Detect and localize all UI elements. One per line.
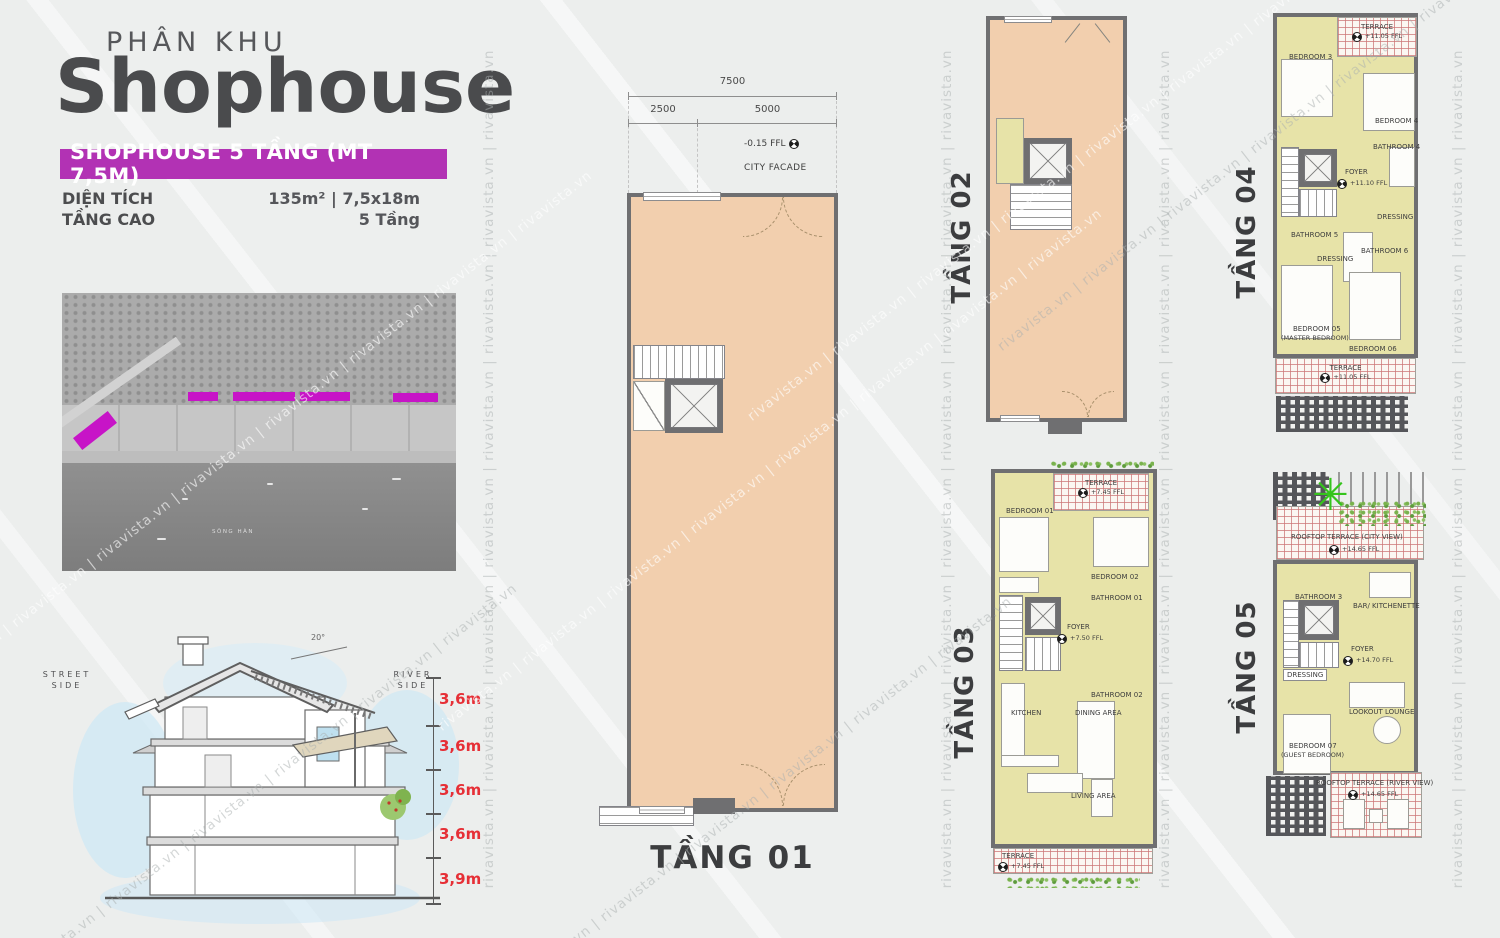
door-swing: [743, 197, 783, 237]
rooftop-city-label: ROOFTOP TERRACE (CITY VIEW): [1291, 533, 1403, 541]
boat: [362, 508, 368, 510]
door-swing: [1062, 391, 1088, 417]
floor-label-tang-01: TẦNG 01: [627, 840, 838, 876]
staircase: [1281, 147, 1299, 217]
floor-height-value: 3,6m: [439, 781, 481, 799]
north-arrow-icon: [1327, 543, 1341, 557]
highlighted-shophouse-row: [188, 392, 218, 401]
building-cross-section: STREET SIDE RIVER SIDE 20° 3,6m 3,6m 3,6…: [55, 615, 485, 930]
elevator-cab: [1030, 602, 1056, 630]
dim-tick: [426, 769, 441, 771]
spec-table: DIỆN TÍCH 135m² | 7,5x18m TẦNG CAO 5 Tần…: [62, 188, 420, 230]
wall-notch: [693, 798, 735, 814]
room-label-bedroom06: BEDROOM 06: [1349, 345, 1397, 353]
ffl-note: +14.70 FFL: [1343, 656, 1393, 666]
dim-line: [628, 96, 837, 97]
spec-row-area: DIỆN TÍCH 135m² | 7,5x18m: [62, 188, 420, 209]
bar-counter: [1369, 572, 1411, 598]
elevator: [665, 379, 723, 433]
staircase: [1283, 600, 1299, 668]
spec-row-floors: TẦNG CAO 5 Tầng: [62, 209, 420, 230]
staircase: [1299, 642, 1339, 668]
floor-label-tang-03: TẦNG 03: [948, 617, 982, 767]
ffl-value: +7.45 FFL: [1011, 863, 1044, 871]
north-arrow-icon: [1318, 371, 1332, 385]
furniture-block: [999, 577, 1039, 593]
floor-label-tang-02: TẦNG 02: [945, 162, 979, 312]
door-swing: [1088, 391, 1114, 417]
lounge-chair: [1387, 799, 1409, 829]
floor-plan-tang-05: BATHROOM 3 BAR/ KITCHENETTE FOYER +14.70…: [1273, 560, 1418, 775]
sofa: [1027, 773, 1083, 793]
floor-label-tang-05: TẦNG 05: [1230, 592, 1264, 742]
staircase: [1025, 637, 1061, 671]
north-arrow-icon: [1335, 177, 1349, 191]
elevator: [1299, 149, 1337, 187]
north-arrow-icon: [1055, 632, 1069, 646]
ffl-value: +11.10 FFL: [1350, 180, 1387, 188]
terrace: TERRACE +11.05 FFL: [1337, 17, 1417, 57]
highlighted-shophouse-row: [233, 392, 295, 401]
boat: [157, 538, 166, 540]
bed: [1281, 59, 1333, 117]
window: [1000, 415, 1040, 422]
window: [639, 806, 685, 814]
ffl-note: +11.05 FFL: [1320, 373, 1370, 383]
rooftop-river-label: ROOFTOP TERRACE (RIVER VIEW): [1316, 779, 1433, 787]
stair-core: [1283, 600, 1339, 670]
stair-landing: [633, 381, 665, 431]
room-label-bathroom01: BATHROOM 01: [1091, 594, 1143, 602]
dim-line: [628, 123, 837, 124]
room-label-living: LIVING AREA: [1071, 792, 1116, 800]
ffl-value: +14.65 FFL: [1342, 546, 1379, 554]
river-side-label: RIVER SIDE: [381, 669, 445, 691]
river-name-label: SÔNG HÀN: [212, 529, 254, 535]
dim-left: 2500: [628, 104, 698, 115]
elevator: [1299, 600, 1339, 640]
highlighted-shophouse-row: [393, 393, 438, 402]
wall-stub: [1048, 418, 1082, 434]
room-label-foyer: FOYER: [1345, 168, 1368, 176]
dim-tick: [426, 813, 441, 815]
north-arrow-icon: [1350, 30, 1364, 44]
ffl-note: +14.65 FFL: [1329, 545, 1379, 555]
boat: [182, 498, 188, 500]
height-dimension-line: [433, 677, 434, 905]
room-label-bathroom4: BATHROOM 4: [1373, 143, 1420, 151]
room-label-bedroom3: BEDROOM 3: [1289, 53, 1332, 61]
room-label-bedroom4: BEDROOM 4: [1375, 117, 1418, 125]
stair-core: [996, 118, 1074, 230]
watermark: rivavista.vn | rivavista.vn | rivavista.…: [1450, 50, 1466, 889]
dim-tick: [426, 677, 441, 679]
staircase: [1299, 189, 1337, 217]
floor-height-value: 3,6m: [439, 737, 481, 755]
north-arrow-icon: [996, 860, 1010, 874]
room-label-dressing: DRESSING: [1377, 213, 1413, 221]
door-leaf: [1095, 23, 1111, 43]
ffl-note: +7.50 FFL: [1057, 634, 1103, 644]
page-title: Shophouse: [55, 44, 515, 130]
elevator-cab: [1304, 605, 1334, 635]
spec-floors-value: 5 Tầng: [359, 209, 420, 230]
floor-plan-tang-02: [986, 16, 1127, 422]
room-label-kitchen: KITCHEN: [1011, 709, 1041, 717]
bed: [1349, 272, 1401, 340]
window: [1004, 16, 1052, 23]
dim-tick: [836, 119, 837, 127]
floor-plan-tang-03: TERRACE +7.45 FFL BEDROOM 01 BEDROOM 02 …: [991, 469, 1157, 848]
room-label-bathroom02: BATHROOM 02: [1091, 691, 1143, 699]
street-side-label: STREET SIDE: [35, 669, 99, 691]
kitchen-counter: [1001, 683, 1025, 761]
watermark: rivavista.vn | rivavista.vn | rivavista.…: [1157, 50, 1173, 889]
room-label-bathroom3: BATHROOM 3: [1295, 593, 1342, 601]
dim-tick: [426, 903, 441, 905]
ffl-value: +11.05 FFL: [1365, 33, 1402, 41]
room-label-bathroom5: BATHROOM 5: [1291, 231, 1338, 239]
floor-label-tang-04: TẦNG 04: [1230, 157, 1264, 307]
room-label-bedroom07-sub: (GUEST BEDROOM): [1281, 752, 1344, 760]
ffl-value: +11.05 FFL: [1333, 374, 1370, 382]
room-label-bedroom01: BEDROOM 01: [1006, 507, 1054, 515]
ffl-value: +14.70 FFL: [1356, 657, 1393, 665]
stair-core: [999, 595, 1061, 673]
sofa: [1349, 682, 1405, 708]
bathroom-fixture: [1389, 147, 1415, 187]
door-swing: [783, 764, 825, 806]
city-facade-label: CITY FACADE: [744, 163, 807, 174]
elevator-cab: [1029, 143, 1067, 179]
staircase: [999, 595, 1023, 671]
elevator-cab: [670, 384, 718, 428]
ffl-note: +14.65 FFL: [1348, 790, 1398, 800]
room-label-dining: DINING AREA: [1075, 709, 1122, 717]
room-label-dressing: DRESSING: [1283, 669, 1327, 681]
dim-tick: [628, 119, 629, 127]
room-label-bar: BAR/ KITCHENETTE: [1353, 602, 1420, 610]
room-label-dressing: DRESSING: [1317, 255, 1353, 263]
floor-height-value: 3,9m: [439, 870, 481, 888]
ffl-note: +11.10 FFL: [1337, 179, 1387, 189]
map-trees-texture: [62, 293, 456, 405]
dim-tick: [697, 119, 698, 127]
terrace: TERRACE +7.45 FFL: [1053, 473, 1149, 511]
staircase: [633, 345, 725, 379]
dim-tick: [628, 92, 629, 100]
boat: [267, 483, 273, 485]
dim-tick: [426, 857, 441, 859]
north-arrow-icon: [1346, 788, 1360, 802]
planting-strip: [1050, 460, 1154, 470]
floor-height-value: 3,6m: [439, 825, 481, 843]
stair-landing: [996, 118, 1024, 184]
ffl-value: +7.50 FFL: [1070, 635, 1103, 643]
planting-strip: [1006, 876, 1140, 888]
map-street-band: [62, 405, 456, 455]
elevator: [1025, 597, 1061, 635]
roof-angle-label: 20°: [311, 633, 325, 642]
bed: [1093, 517, 1149, 567]
spec-area-label: DIỆN TÍCH: [62, 188, 153, 209]
room-label-foyer: FOYER: [1067, 623, 1090, 631]
dim-tick: [836, 92, 837, 100]
dim-total: 7500: [627, 76, 838, 87]
lounge-chair: [1343, 799, 1365, 829]
north-arrow-icon: [786, 137, 800, 151]
elevator-cab: [1304, 154, 1332, 182]
room-label-bedroom05-sub: (MASTER BEDROOM): [1281, 335, 1349, 343]
room-label-bedroom02: BEDROOM 02: [1091, 573, 1139, 581]
bed: [999, 517, 1049, 572]
room-label-foyer: FOYER: [1351, 645, 1374, 653]
brochure-page: rivavista.vn | rivavista.vn | rivavista.…: [0, 0, 1500, 938]
terrace: TERRACE +11.05 FFL: [1275, 358, 1416, 394]
room-label-lookout: LOOKOUT LOUNGE: [1349, 708, 1414, 716]
terrace-label: TERRACE: [1085, 479, 1117, 487]
north-arrow-icon: [1341, 654, 1355, 668]
floor-plan-tang-04: TERRACE +11.05 FFL BEDROOM 3 BEDROOM 4 B…: [1273, 13, 1418, 358]
floor-height-value: 3,6m: [439, 690, 481, 708]
door-swing: [741, 764, 783, 806]
room-label-bedroom05: BEDROOM 05: [1293, 325, 1341, 333]
room-label-bedroom07: BEDROOM 07: [1289, 742, 1337, 750]
terrace: TERRACE +7.45 FFL: [993, 848, 1153, 874]
ffl-value: +7.45 FFL: [1091, 489, 1124, 497]
door-swing: [783, 197, 823, 237]
staircase: [1010, 184, 1072, 230]
ffl-note: +7.45 FFL: [1078, 488, 1124, 498]
dim-extension: [697, 123, 698, 193]
terrace-label: TERRACE: [1002, 852, 1034, 860]
pergola-trellis: [1276, 396, 1408, 432]
ffl-note: -0.15 FFL: [744, 139, 799, 150]
door-leaf: [1065, 23, 1081, 43]
dim-tick: [426, 725, 441, 727]
type-banner: SHOPHOUSE 5 TẦNG (MT 7,5M): [60, 149, 447, 179]
spec-area-value: 135m² | 7,5x18m: [268, 188, 420, 209]
elevator: [1024, 138, 1072, 184]
side-table: [1369, 809, 1383, 823]
ffl-value: +14.65 FFL: [1361, 791, 1398, 799]
terrace-label: TERRACE: [1361, 23, 1393, 31]
ffl-value: -0.15 FFL: [744, 139, 786, 150]
room-label-bathroom6: BATHROOM 6: [1361, 247, 1408, 255]
window: [643, 192, 721, 201]
lounge-table: [1373, 716, 1401, 744]
palm-tree-icon: ✳: [1312, 474, 1349, 518]
terrace-label: TERRACE: [1329, 364, 1361, 372]
spec-floors-label: TẦNG CAO: [62, 209, 155, 230]
section-drawing: [55, 615, 485, 930]
ffl-note: +11.05 FFL: [1352, 32, 1402, 42]
site-location-map: SÔNG HÀN: [62, 293, 456, 571]
kitchen-counter: [1001, 755, 1059, 767]
planting-strip: [1338, 500, 1426, 526]
boat: [392, 478, 401, 480]
ffl-note: +7.45 FFL: [998, 862, 1044, 872]
floor-plan-tang-01: [627, 193, 838, 812]
dim-right: 5000: [698, 104, 837, 115]
stair-core: [1281, 147, 1339, 219]
highlighted-shophouse-row: [300, 392, 350, 401]
north-arrow-icon: [1076, 486, 1090, 500]
